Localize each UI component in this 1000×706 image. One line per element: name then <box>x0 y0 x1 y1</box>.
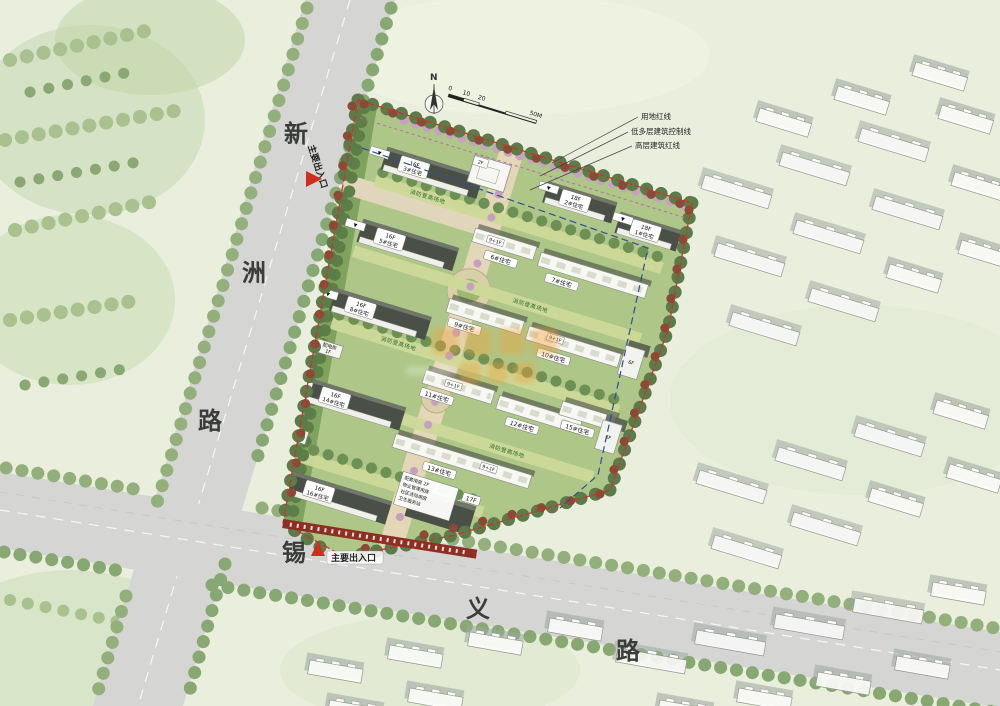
legend-item-red-line: 用地红线 <box>641 111 671 121</box>
legend-item-highrise-line: 高层建筑红线 <box>635 140 680 150</box>
road-xiyi-char-1: 锡 <box>282 539 306 567</box>
entrance-south-label: 主要出入口 <box>331 552 376 564</box>
north-label: N <box>430 73 438 83</box>
road-xiyi-char-3: 路 <box>616 637 641 665</box>
road-xinzhou-char-2: 洲 <box>242 259 266 287</box>
road-xinzhou-char-1: 新 <box>284 120 308 148</box>
site-plan-screenshot: 16F 3#住宅 16F 5#住宅 16F 8#住宅 <box>0 0 1000 706</box>
legend-item-lowrise-line: 低多层建筑控制线 <box>631 126 691 136</box>
master-plan-svg: 16F 3#住宅 16F 5#住宅 16F 8#住宅 <box>0 0 1000 706</box>
road-xiyi-char-2: 义 <box>466 595 490 623</box>
road-xinzhou-char-3: 路 <box>198 407 223 435</box>
